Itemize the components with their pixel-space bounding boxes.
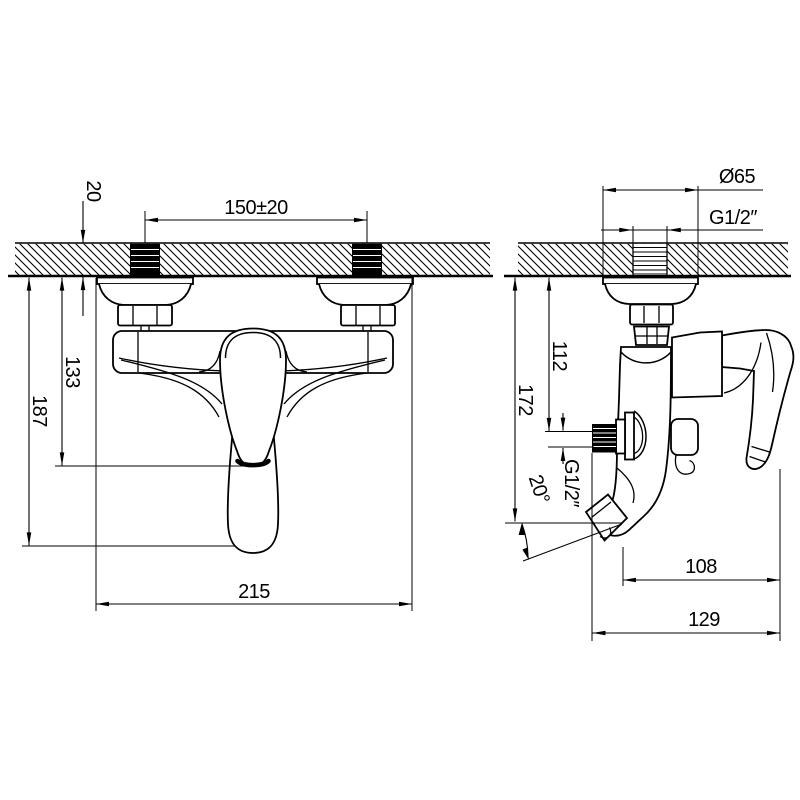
dim-label-wall-to-spout: 172 bbox=[514, 384, 536, 416]
inlet-pipe-side bbox=[633, 244, 667, 275]
cartridge-block-side bbox=[672, 332, 722, 398]
wall-section-side bbox=[504, 243, 791, 276]
dim-label-wall-to-lever-end: 187 bbox=[28, 395, 50, 427]
dim-label-wall-to-outlet: 112 bbox=[548, 341, 570, 372]
dim-label-inlet-thread: G1/2″ bbox=[709, 207, 757, 229]
dim-label-overall-depth: 129 bbox=[688, 609, 720, 631]
hex-nut-left bbox=[118, 305, 172, 326]
installation-drawing: 20 150±20 133 187 215 bbox=[0, 0, 800, 800]
paper bbox=[0, 0, 800, 800]
hex-nut-side bbox=[630, 305, 673, 325]
hex-nut-right bbox=[341, 305, 395, 326]
dim-label-wall-thickness: 20 bbox=[82, 180, 104, 202]
dim-label-spout-reach: 108 bbox=[685, 556, 717, 578]
dim-label-outlet-thread: G1/2″ bbox=[560, 459, 582, 507]
diverter-knob bbox=[671, 419, 698, 455]
dim-label-inlet-spacing: 150±20 bbox=[224, 197, 288, 219]
dim-label-wall-to-handle: 133 bbox=[61, 356, 83, 388]
dim-label-overall-width: 215 bbox=[238, 581, 270, 603]
inlet-pipe-right bbox=[352, 244, 382, 276]
dim-label-flange-diameter: Ø65 bbox=[719, 166, 756, 188]
inlet-pipe-left bbox=[130, 244, 160, 276]
